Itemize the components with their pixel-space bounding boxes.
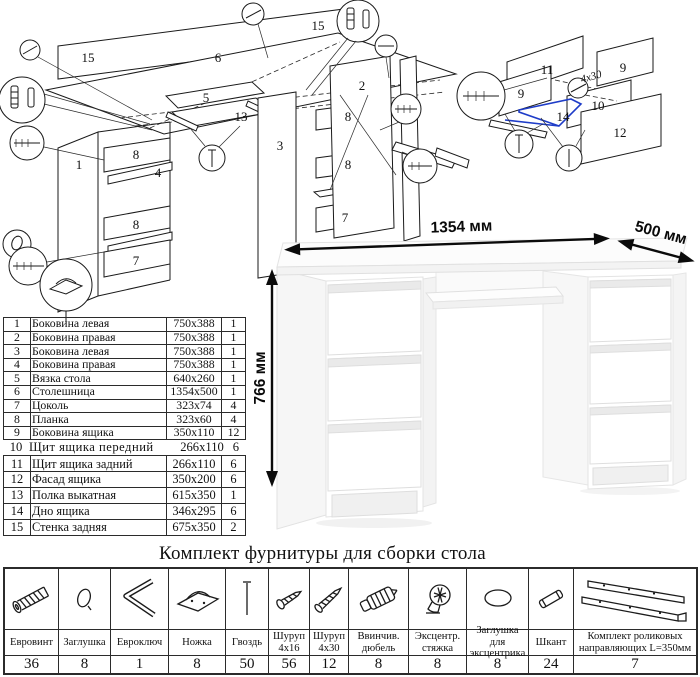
part-size-cell: 750x388 <box>167 331 222 345</box>
part-label-12: 12 <box>614 125 627 140</box>
hardware-col-eurovint: Евровинт 36 <box>5 569 59 673</box>
part-num-cell: 7 <box>4 399 31 413</box>
hex-key-icon <box>111 569 168 630</box>
table-row: 9Боковина ящика350x11012 <box>4 426 246 440</box>
part-qty-cell: 1 <box>222 372 246 386</box>
callout-dowel <box>391 94 421 124</box>
part-size-cell: 323x60 <box>167 413 222 427</box>
desk-assembly-instruction-sheet: 15 15 6 5 13 1 2 3 4 8 8 8 8 7 7 <box>0 0 700 677</box>
part-size-cell: 266x110 <box>167 456 222 472</box>
part-qty-cell: 1 <box>222 488 246 504</box>
hardware-qty: 36 <box>5 656 58 673</box>
part-name-cell: Щит ящика передний <box>29 440 179 455</box>
part-size-cell: 640x260 <box>167 372 222 386</box>
part-name-cell: Столешница <box>31 385 167 399</box>
cap-icon <box>59 569 110 630</box>
part-size-cell: 1354x500 <box>167 385 222 399</box>
part-num-cell: 3 <box>4 345 31 359</box>
parts-table-lower: 11Щит ящика задний266x1106 12Фасад ящика… <box>3 455 246 535</box>
hardware-name: Шуруп 4x16 <box>269 630 309 656</box>
hardware-col-gvozd: Гвоздь 50 <box>226 569 269 673</box>
height-dimension: 766 мм <box>252 269 278 487</box>
hardware-name: Заглушка <box>59 630 110 656</box>
part-num-cell: 14 <box>4 504 31 520</box>
part-num-cell: 6 <box>4 385 31 399</box>
hardware-qty: 8 <box>59 656 110 673</box>
part-size-cell: 675x350 <box>167 519 222 535</box>
opening-left-wall <box>423 277 436 507</box>
part-size-cell: 350x200 <box>167 472 222 488</box>
part-num-cell: 8 <box>4 413 31 427</box>
hardware-col-nozhka: Ножка 8 <box>169 569 226 673</box>
hardware-col-styazhka: Эксцентр. стяжка 8 <box>409 569 467 673</box>
part-label-15: 15 <box>312 18 325 33</box>
part-label-8: 8 <box>133 217 140 232</box>
part-size-cell: 750x388 <box>167 358 222 372</box>
part-label-9: 9 <box>518 86 525 101</box>
hardware-col-dyubel: Ввинчив. дюбель 8 <box>349 569 409 673</box>
hardware-qty: 50 <box>226 656 268 673</box>
part-label-7: 7 <box>133 253 140 268</box>
height-label: 766 мм <box>252 351 269 404</box>
part-size-cell: 266x110 <box>179 440 225 455</box>
table-row: 3Боковина левая750x3881 <box>4 345 246 359</box>
part-num-cell: 13 <box>4 488 31 504</box>
part-num-cell: 5 <box>4 372 31 386</box>
callout-nail <box>541 118 585 171</box>
part-name-cell: Стенка задняя <box>31 519 167 535</box>
parts-table-upper: 1Боковина левая750x3881 2Боковина правая… <box>3 317 246 440</box>
screw-long-icon <box>310 569 348 630</box>
part-label-8: 8 <box>345 157 352 172</box>
hardware-name: Комплект роликовых направляющих L=350мм <box>574 630 696 656</box>
table-row: 11Щит ящика задний266x1106 <box>4 456 246 472</box>
parts-list-table: 1Боковина левая750x3881 2Боковина правая… <box>3 317 239 536</box>
hardware-name: Эксцентр. стяжка <box>409 630 466 656</box>
callout-screw <box>403 149 437 183</box>
hardware-qty: 8 <box>409 656 466 673</box>
part-label-11: 11 <box>541 62 554 77</box>
part-label-6: 6 <box>215 50 222 65</box>
part-label-9: 9 <box>620 60 627 75</box>
table-row: 13Полка выкатная615x3501 <box>4 488 246 504</box>
part-qty-cell: 6 <box>222 472 246 488</box>
cam-lock-icon <box>409 569 466 630</box>
desk-left-side <box>277 269 326 529</box>
hardware-qty: 24 <box>529 656 573 673</box>
table-row: 14Дно ящика346x2956 <box>4 504 246 520</box>
hardware-qty: 8 <box>169 656 225 673</box>
part-num-cell: 11 <box>4 456 31 472</box>
part-size-cell: 750x388 <box>167 345 222 359</box>
part-qty-cell: 1 <box>222 385 246 399</box>
part-qty-cell: 6 <box>225 440 239 455</box>
hardware-col-eurokey: Евроключ 1 <box>111 569 169 673</box>
part-qty-cell: 2 <box>222 519 246 535</box>
part-name-cell: Вязка стола <box>31 372 167 386</box>
hardware-name: Шкант <box>529 630 573 656</box>
part-name-cell: Боковина правая <box>31 358 167 372</box>
part-name-cell: Щит ящика задний <box>31 456 167 472</box>
part-size-cell: 346x295 <box>167 504 222 520</box>
part-num-cell: 4 <box>4 358 31 372</box>
callout-nail <box>199 145 225 171</box>
table-row: 12Фасад ящика350x2006 <box>4 472 246 488</box>
part-label-2: 2 <box>359 78 366 93</box>
wood-dowel-icon <box>529 569 573 630</box>
screw-in-dowel-icon <box>349 569 408 630</box>
hardware-col-shurup-4x16: Шуруп 4x16 56 <box>269 569 310 673</box>
part-name-cell: Фасад ящика <box>31 472 167 488</box>
part-qty-cell: 6 <box>222 456 246 472</box>
part-size-cell: 323x74 <box>167 399 222 413</box>
part-num-cell: 1 <box>4 318 31 332</box>
drawer-slides-icon <box>574 569 696 630</box>
table-row: 8Планка323x604 <box>4 413 246 427</box>
euro-screw-icon <box>5 569 58 630</box>
part-size-cell: 350x110 <box>167 426 222 440</box>
part-qty-cell: 1 <box>222 318 246 332</box>
hardware-name: Евроключ <box>111 630 168 656</box>
hardware-qty: 12 <box>310 656 348 673</box>
hardware-col-slides: Комплект роликовых направляющих L=350мм … <box>574 569 696 673</box>
hardware-name: Ввинчив. дюбель <box>349 630 408 656</box>
desk-dimensions-render: 1354 мм 500 мм 766 мм <box>250 213 700 547</box>
part-num-cell: 12 <box>4 472 31 488</box>
screw-small-icon <box>269 569 309 630</box>
table-row-borderless: 10 Щит ящика передний 266x110 6 <box>3 440 239 455</box>
hardware-col-shurup-4x30: Шуруп 4x30 12 <box>310 569 349 673</box>
hardware-qty: 8 <box>467 656 528 673</box>
table-row: 6Столешница1354x5001 <box>4 385 246 399</box>
part-label-8: 8 <box>133 147 140 162</box>
table-row: 5Вязка стола640x2601 <box>4 372 246 386</box>
part-label-1: 1 <box>76 157 83 172</box>
part-label-8: 8 <box>345 109 352 124</box>
left-drawer-stack <box>328 281 421 517</box>
floor-shadow <box>316 518 432 528</box>
part-name-cell: Боковина ящика <box>31 426 167 440</box>
table-row: 4Боковина правая750x3881 <box>4 358 246 372</box>
part-label-14: 14 <box>557 109 571 124</box>
part-qty-cell: 4 <box>222 413 246 427</box>
part-label-3: 3 <box>277 138 284 153</box>
part-qty-cell: 6 <box>222 504 246 520</box>
hardware-qty: 8 <box>349 656 408 673</box>
hardware-col-shkant: Шкант 24 <box>529 569 574 673</box>
right-drawer-stack <box>590 279 671 485</box>
cam-cap-icon <box>467 569 528 630</box>
callout-foot <box>40 259 92 322</box>
hardware-qty: 1 <box>111 656 168 673</box>
desk-right-side <box>673 273 686 485</box>
part-qty-cell: 1 <box>222 345 246 359</box>
part-label-15: 15 <box>82 50 95 65</box>
part-size-cell: 615x350 <box>167 488 222 504</box>
part-label-13: 13 <box>235 109 248 124</box>
exploded-drawer-diagram: 11 9 9 10 14 12 4x30 <box>435 0 700 215</box>
part-name-cell: Планка <box>31 413 167 427</box>
hardware-name: Ножка <box>169 630 225 656</box>
part-label-4: 4 <box>155 165 162 180</box>
part-num-cell: 9 <box>4 426 31 440</box>
part-name-cell: Полка выкатная <box>31 488 167 504</box>
hardware-name: Гвоздь <box>226 630 268 656</box>
hardware-col-zaglushka-eks: Заглушка для эксцентрика 8 <box>467 569 529 673</box>
hardware-qty: 7 <box>574 656 696 673</box>
hardware-name: Заглушка для эксцентрика <box>467 630 528 656</box>
part-name-cell: Цоколь <box>31 399 167 413</box>
hardware-qty: 56 <box>269 656 309 673</box>
table-row: 1Боковина левая750x3881 <box>4 318 246 332</box>
part-num-cell: 10 <box>3 440 29 455</box>
width-label: 1354 мм <box>430 218 492 237</box>
part-label-5: 5 <box>203 90 210 105</box>
hardware-kit-title: Комплект фурнитуры для сборки стола <box>0 543 645 565</box>
foot-icon <box>169 569 225 630</box>
hardware-name: Евровинт <box>5 630 58 656</box>
hardware-name: Шуруп 4x30 <box>310 630 348 656</box>
part-num-cell: 2 <box>4 331 31 345</box>
part-name-cell: Боковина правая <box>31 331 167 345</box>
hardware-kit-table: Евровинт 36 Заглушка 8 Евроключ 1 <box>3 567 698 675</box>
part-name-cell: Боковина левая <box>31 345 167 359</box>
part-name-cell: Дно ящика <box>31 504 167 520</box>
part-num-cell: 15 <box>4 519 31 535</box>
part-name-cell: Боковина левая <box>31 318 167 332</box>
part-qty-cell: 4 <box>222 399 246 413</box>
table-row: 2Боковина правая750x3881 <box>4 331 246 345</box>
nail-icon <box>226 569 268 630</box>
part-label-10: 10 <box>592 98 605 113</box>
table-row: 15Стенка задняя675x3502 <box>4 519 246 535</box>
part-qty-cell: 12 <box>222 426 246 440</box>
hardware-col-zaglushka: Заглушка 8 <box>59 569 111 673</box>
part-qty-cell: 1 <box>222 358 246 372</box>
metal-rail-end <box>435 148 469 168</box>
part-size-cell: 750x388 <box>167 318 222 332</box>
table-row: 7Цоколь323x744 <box>4 399 246 413</box>
part-qty-cell: 1 <box>222 331 246 345</box>
